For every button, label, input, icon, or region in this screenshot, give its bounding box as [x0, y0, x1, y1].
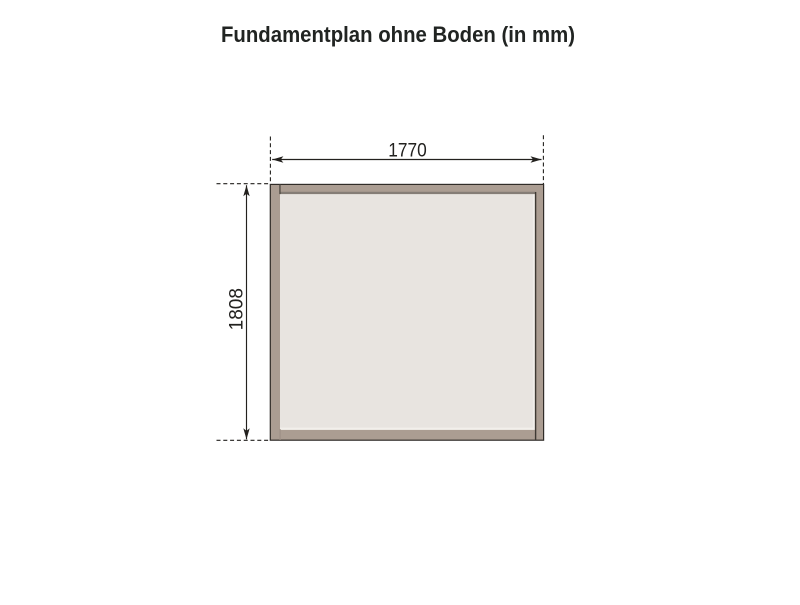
svg-text:1808: 1808 — [226, 288, 247, 330]
svg-text:1770: 1770 — [388, 141, 427, 162]
svg-text:Fundamentplan ohne Boden (in m: Fundamentplan ohne Boden (in mm) — [221, 22, 575, 47]
